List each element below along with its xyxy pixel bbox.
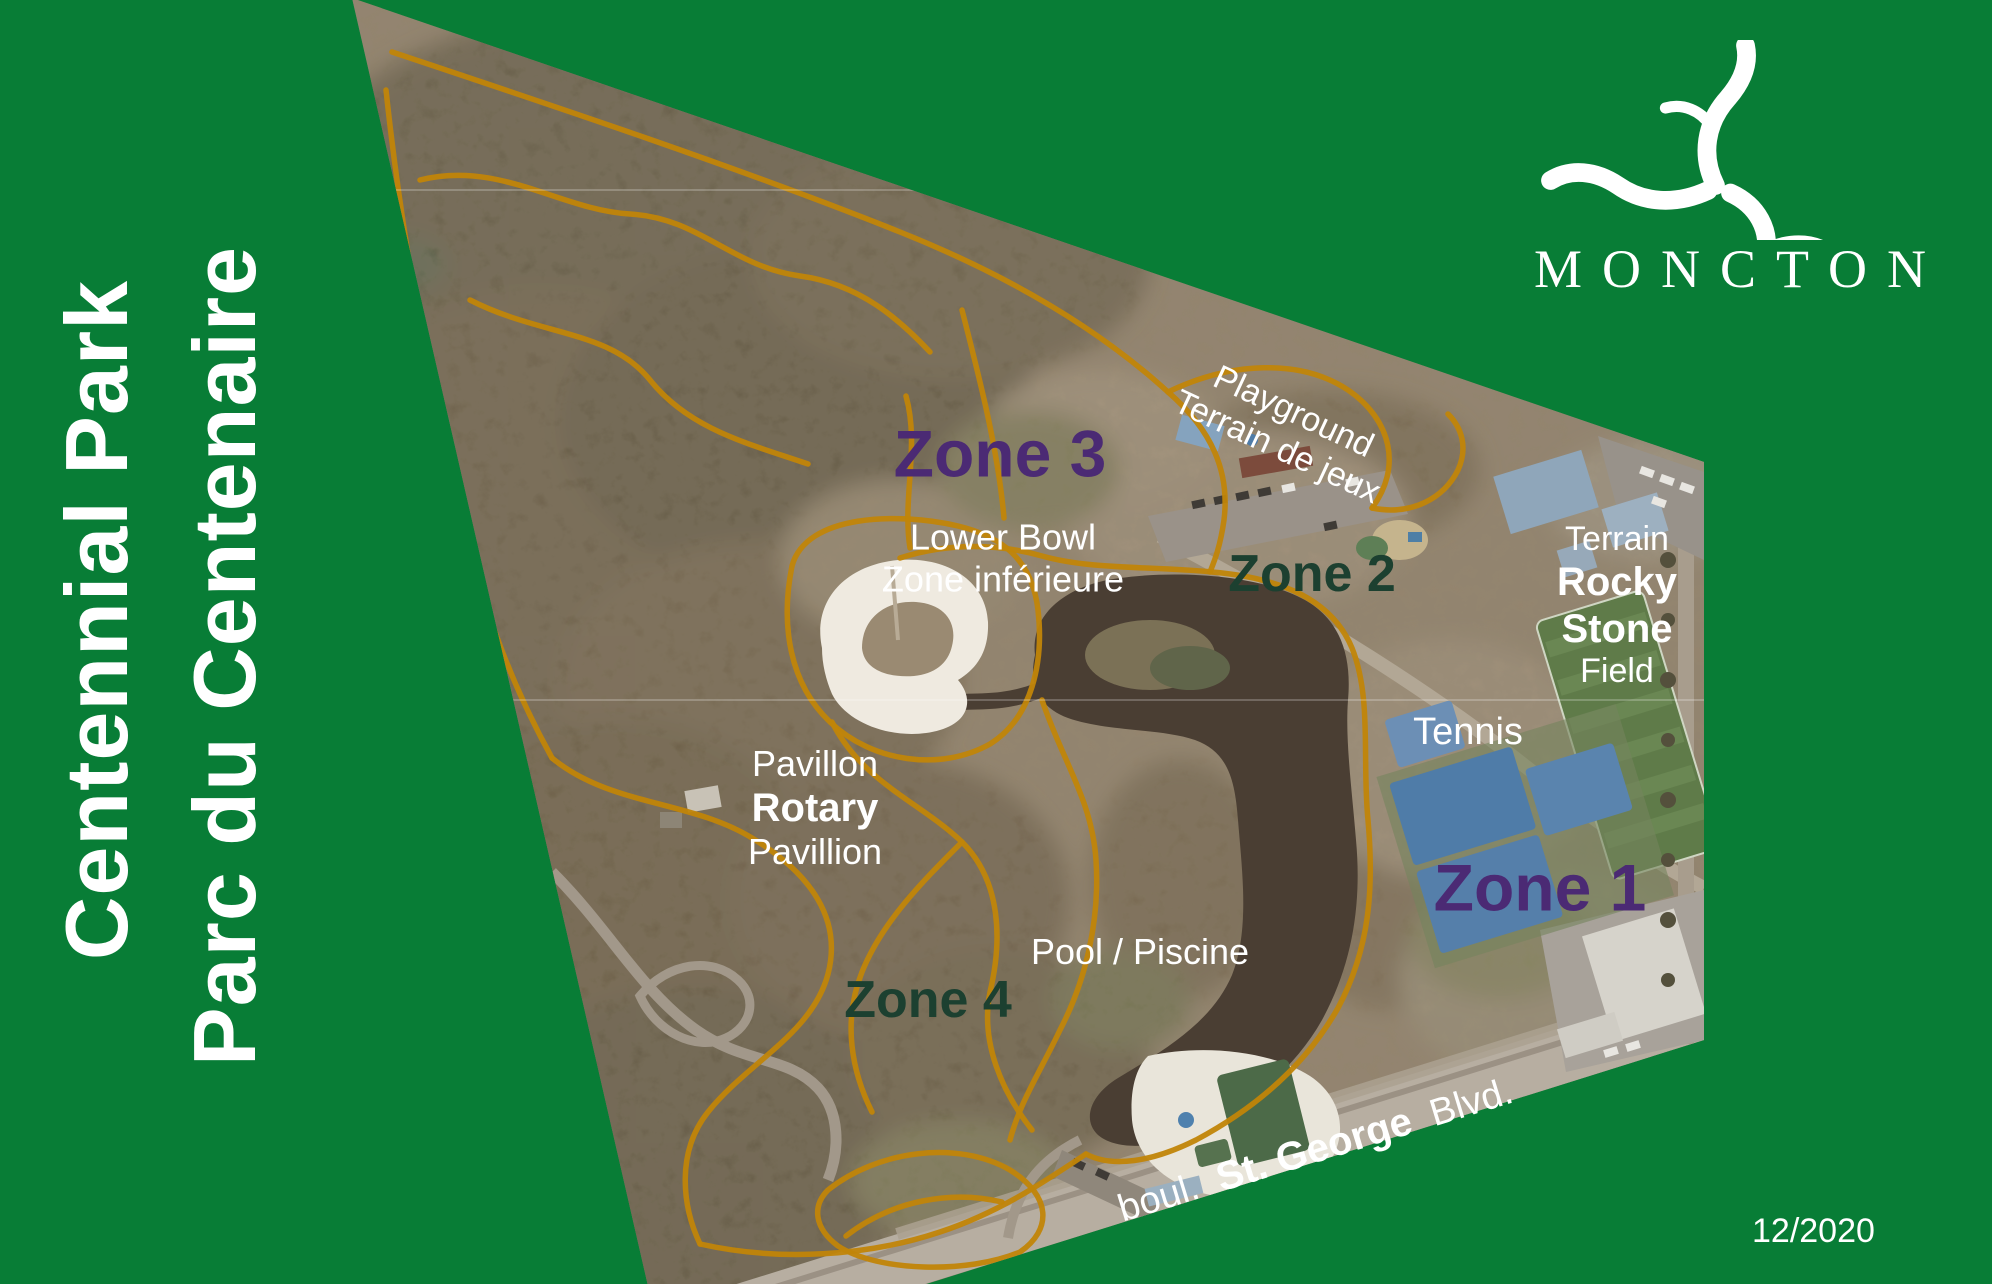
field-label-prefix: Terrain xyxy=(1557,520,1677,559)
lower-bowl-french: Zone inférieure xyxy=(882,558,1124,600)
pavilion-french: Pavillon xyxy=(748,743,882,785)
zone-3-label: Zone 3 xyxy=(894,416,1107,493)
map-date: 12/2020 xyxy=(1752,1212,1875,1251)
moncton-logo: MONCTON xyxy=(1480,40,1960,300)
rotary-pavilion-label: Pavillon Rotary Pavillion xyxy=(748,743,882,873)
pavilion-name: Rotary xyxy=(748,785,882,831)
field-name-line2: Stone xyxy=(1557,606,1677,652)
zone-1-label: Zone 1 xyxy=(1434,850,1647,927)
park-map-poster: Centennial Park Parc du Centenaire MONCT… xyxy=(0,0,1992,1284)
field-name-line1: Rocky xyxy=(1557,560,1677,606)
park-title-french: Parc du Centenaire xyxy=(174,246,276,1066)
zone-2-label: Zone 2 xyxy=(1228,544,1396,604)
park-title-english: Centennial Park xyxy=(46,280,148,960)
moncton-swirl-icon xyxy=(1480,40,1960,240)
lower-bowl-label: Lower Bowl Zone inférieure xyxy=(882,516,1124,600)
pool-label: Pool / Piscine xyxy=(1031,931,1249,973)
lower-bowl-english: Lower Bowl xyxy=(882,516,1124,558)
tennis-label: Tennis xyxy=(1413,710,1523,754)
moncton-wordmark: MONCTON xyxy=(1502,238,1958,300)
zone-4-label: Zone 4 xyxy=(844,970,1012,1030)
field-label-suffix: Field xyxy=(1557,652,1677,691)
rocky-stone-field-label: Terrain Rocky Stone Field xyxy=(1557,520,1677,692)
pavilion-english: Pavillion xyxy=(748,831,882,873)
